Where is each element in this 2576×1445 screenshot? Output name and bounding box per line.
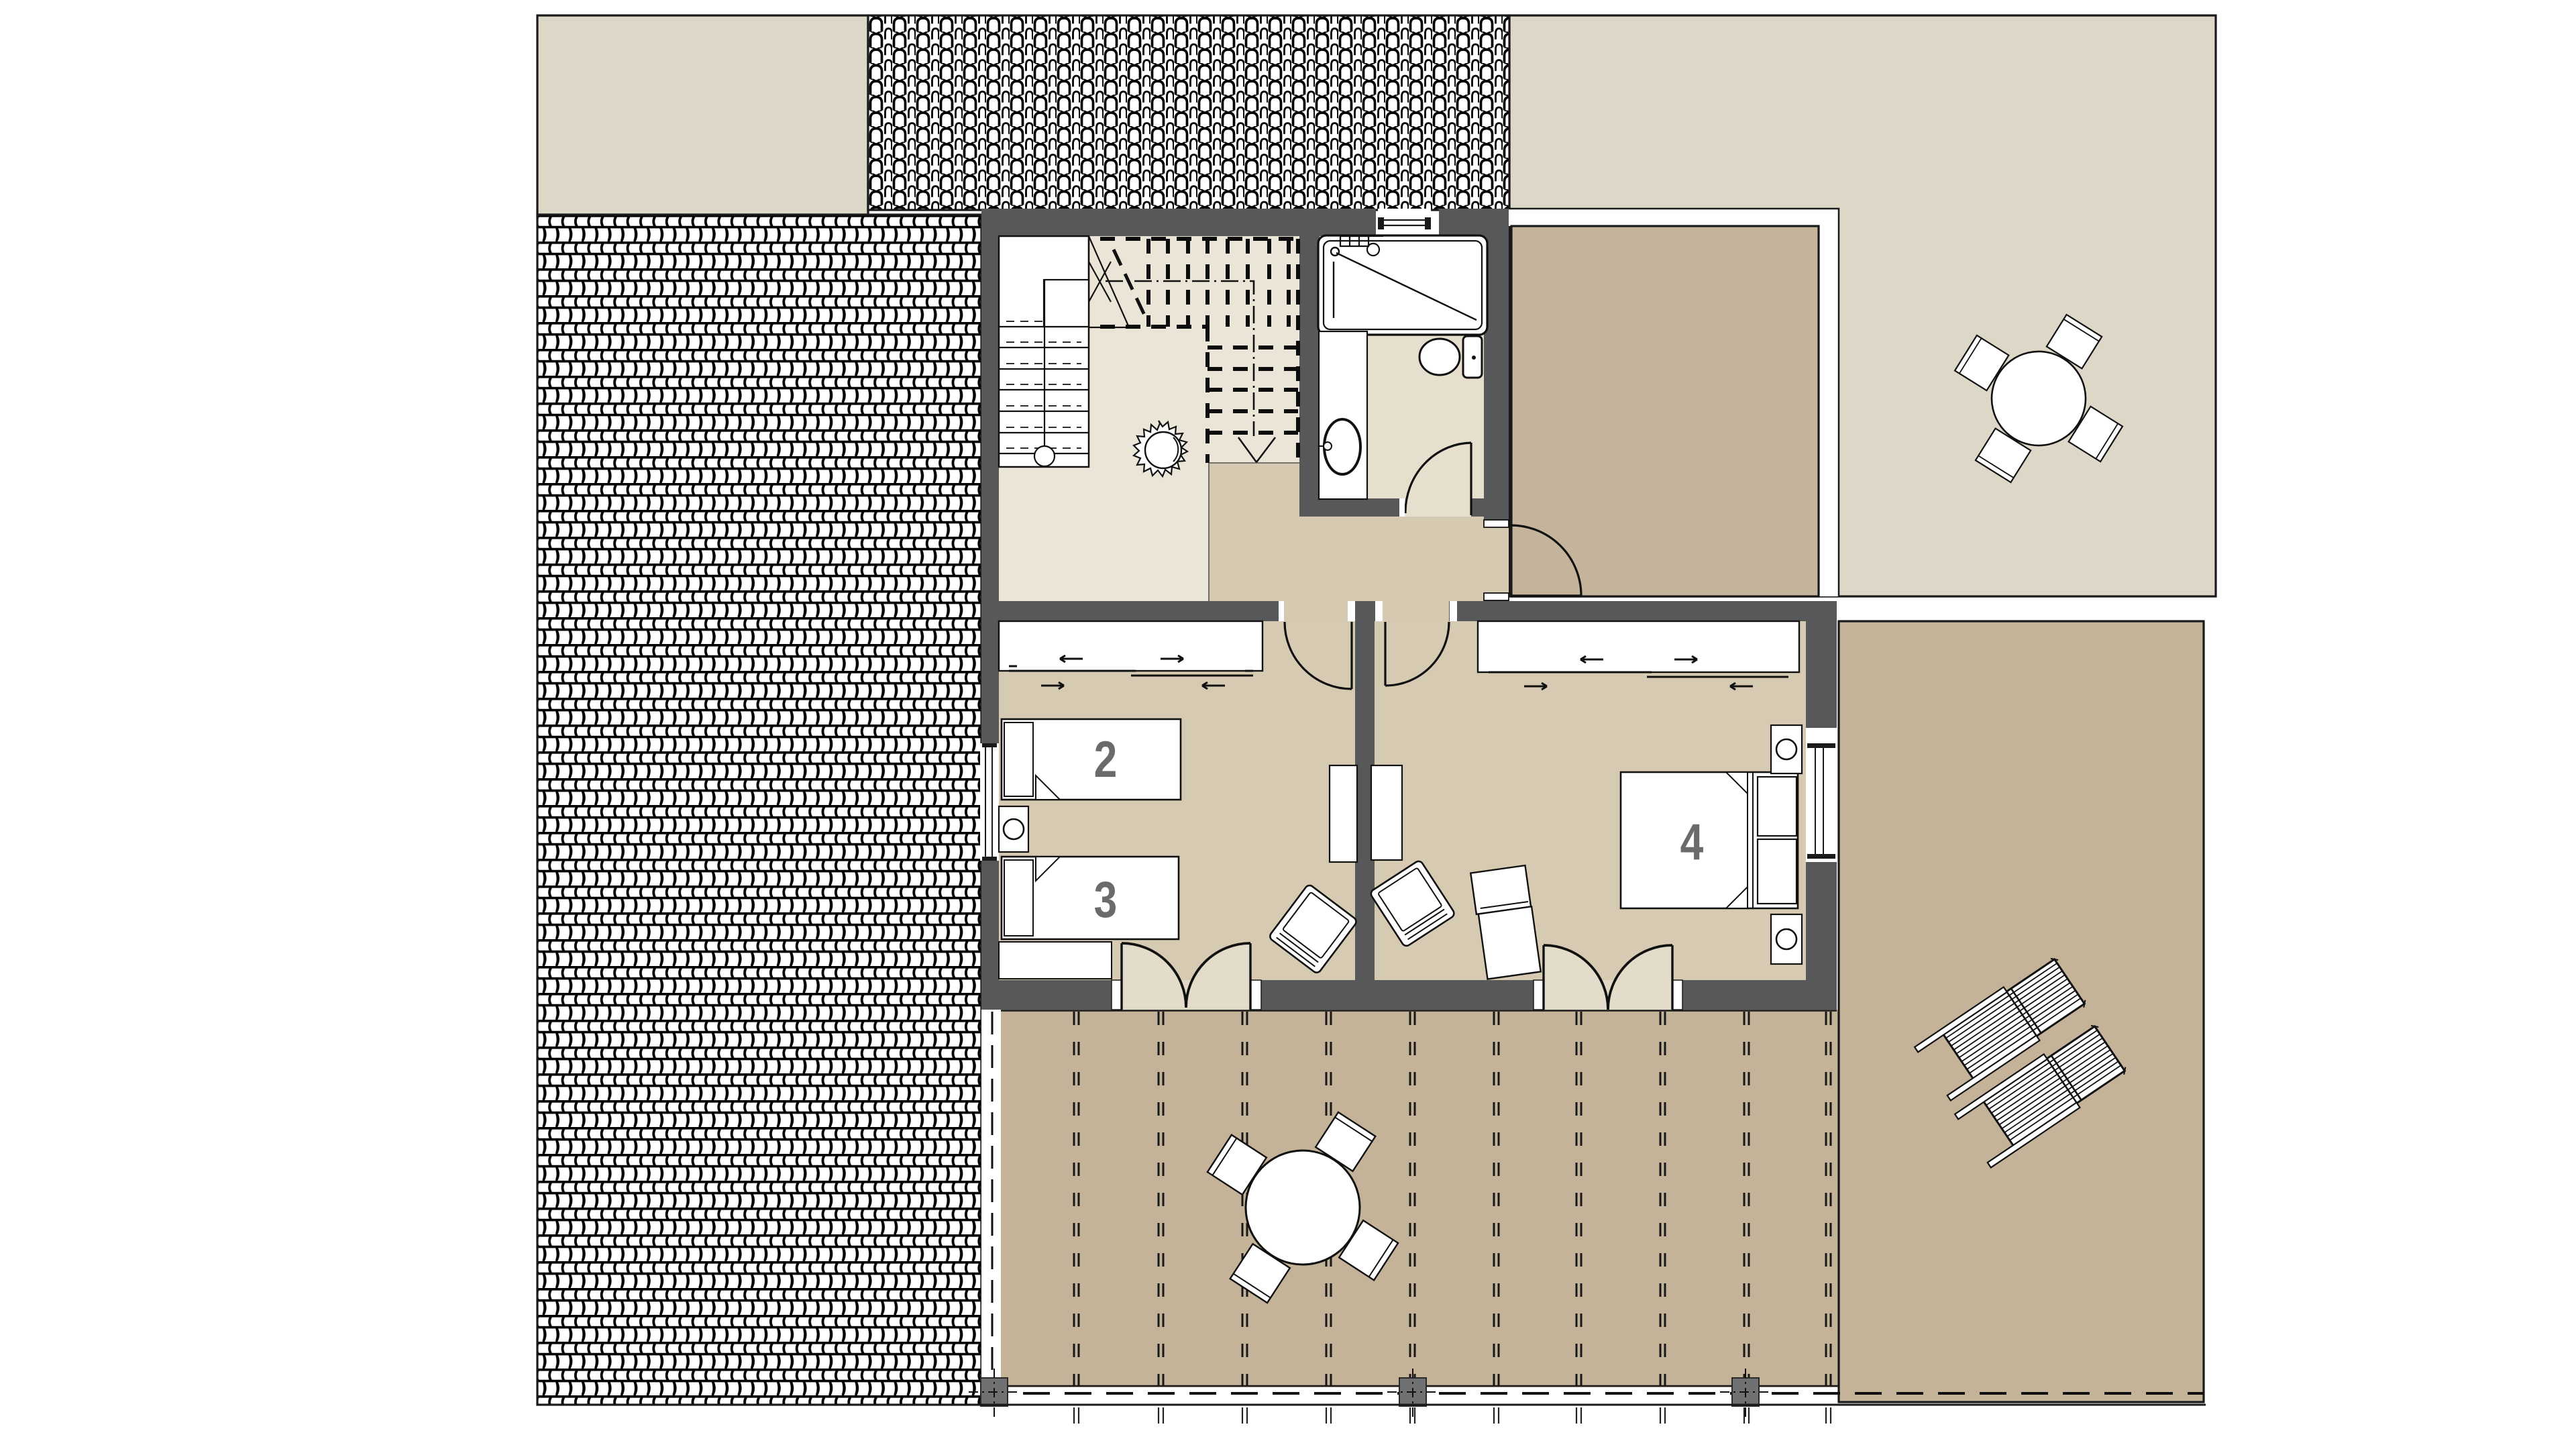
svg-text:2: 2: [1094, 731, 1118, 788]
svg-text:3: 3: [1094, 871, 1118, 928]
svg-text:4: 4: [1680, 813, 1704, 870]
